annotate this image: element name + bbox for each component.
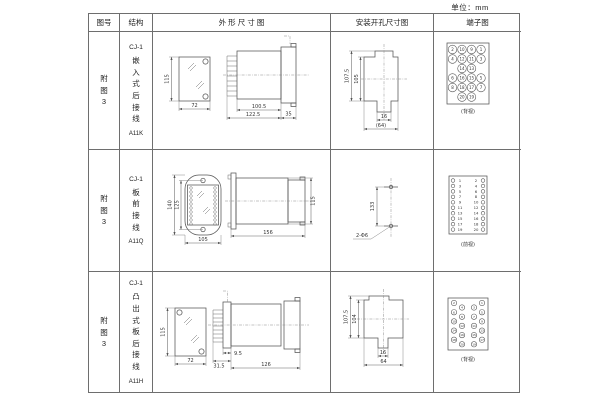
outline-drawing-1: 115 72 100.5 122.5 35 [153,32,330,149]
svg-text:18: 18 [459,85,465,90]
dim-label: 100.5 [252,104,266,110]
dimension-table: 图号 结构 外 形 尺 寸 图 安装开孔尺寸图 端子图 附图3 CJ-1 嵌入式… [88,13,520,393]
svg-text:18: 18 [452,337,456,341]
dim-label: 104 [352,314,358,324]
dim-label: 31.5 [213,363,224,369]
svg-text:4: 4 [461,305,463,309]
terminal-diagram-1: 2109141211314136161558181772019 (背视) [435,32,521,149]
structure-cell-3: CJ-1 凸出式板后接线 A11H [120,272,153,393]
mounting-drawing-2: 133 2-Φ6 [331,150,433,271]
svg-text:9: 9 [481,319,483,323]
svg-text:5: 5 [458,189,461,194]
svg-text:1: 1 [479,47,482,52]
svg-text:9: 9 [458,200,461,205]
structure-cell-1: CJ-1 嵌入式后接线 A11K [120,32,153,150]
svg-text:8: 8 [451,85,454,90]
svg-text:17: 17 [457,221,462,226]
svg-text:9: 9 [470,47,473,52]
outline-drawing-3: 115 72 9.5 31.5 126 [153,273,330,393]
terminal-cell-3: 2610141848121620371115191591317 (背视) [434,272,521,393]
terminal-diagram-3: 2610141848121620371115191591317 (背视) [435,273,521,393]
svg-text:12: 12 [459,56,465,61]
terminal-diagram-2: 1357911131517192468101214161820 (前视) [435,150,521,271]
dim-label: 107.5 [345,69,351,83]
mounting-cell-3: 107.5 104 16 64 [331,272,434,393]
svg-text:15: 15 [472,333,476,337]
dim-label: 35 [285,112,291,118]
terminal-cell-1: 2109141211314136161558181772019 (背视) [434,32,521,150]
svg-text:7: 7 [479,85,482,90]
manual-page: 单位：mm 图号 结构 外 形 尺 寸 图 安装开孔尺寸图 端子图 附图3 CJ… [0,0,600,400]
svg-text:10: 10 [473,200,478,205]
svg-text:1: 1 [458,178,461,183]
svg-text:4: 4 [451,56,454,61]
dim-label: 156 [263,230,273,236]
svg-text:1: 1 [481,301,483,305]
svg-text:16: 16 [460,333,464,337]
svg-text:14: 14 [452,328,456,332]
svg-text:2: 2 [453,301,455,305]
dim-label: 72 [187,358,193,364]
svg-text:6: 6 [453,310,455,314]
svg-text:8: 8 [474,194,477,199]
svg-text:16: 16 [459,75,465,80]
unit-label: 单位：mm [420,2,520,13]
header-structure: 结构 [120,14,153,32]
svg-text:5: 5 [479,75,482,80]
structure-desc-1: 嵌入式后接线 [132,55,140,125]
hole-callout: 2-Φ6 [356,233,368,239]
dim-label: 9.5 [234,351,242,357]
outline-cell-3: 115 72 9.5 31.5 126 [153,272,331,393]
outline-cell-1: 115 72 100.5 122.5 35 [153,32,331,150]
dim-label: 140 [168,200,174,210]
view-label: (前视) [461,241,475,248]
dim-label: 122.5 [246,112,260,118]
svg-text:11: 11 [457,205,462,210]
dim-label: 115 [311,196,317,206]
svg-text:15: 15 [457,216,462,221]
svg-text:10: 10 [459,47,465,52]
svg-text:3: 3 [473,305,475,309]
structure-code-1: A11K [129,131,143,137]
dim-label: 64 [380,359,386,365]
svg-text:11: 11 [472,323,476,327]
svg-text:3: 3 [458,183,461,188]
hatch-mark [188,63,196,71]
outline-drawing-2: 140 125 105 156 115 [153,150,330,271]
svg-text:7: 7 [473,314,475,318]
header-structure-label: 结构 [129,17,144,28]
dim-label: 115 [161,327,167,337]
terminal-pins: 2109141211314136161558181772019 [448,45,485,101]
svg-text:14: 14 [473,211,478,216]
terminal-strip [190,187,193,226]
dim-label: 72 [191,103,197,109]
svg-text:2: 2 [451,47,454,52]
svg-text:4: 4 [474,183,477,188]
hatch-mark [184,317,192,325]
fig-no-cell-3: 附图3 [89,272,120,393]
svg-text:2: 2 [474,178,477,183]
fig-no-cell-1: 附图3 [89,32,120,150]
mounting-drawing-1: 107.5 105 16 (64) [331,32,433,149]
svg-text:7: 7 [458,194,461,199]
svg-text:19: 19 [468,94,474,99]
terminal-strip [214,187,217,226]
hatch-mark [196,81,204,89]
svg-text:17: 17 [480,337,484,341]
structure-cell-2: CJ-1 板前接线 A11Q [120,150,153,272]
svg-text:8: 8 [461,314,463,318]
terminal-pins: 2610141848121620371115191591317 [451,300,484,347]
dim-label: 125 [175,200,181,210]
hatch-mark [203,207,210,214]
dim-label: 115 [165,74,171,84]
dim-label: 105 [354,74,360,84]
model-name-1: CJ-1 [129,44,143,51]
svg-text:13: 13 [457,211,462,216]
svg-text:6: 6 [474,189,477,194]
terminal-cell-2: 1357911131517192468101214161820 (前视) [434,150,521,272]
svg-text:20: 20 [473,227,478,232]
hatch-mark [191,335,199,343]
fig-no-2: 附图3 [100,193,108,228]
model-name-3: CJ-1 [129,280,143,287]
structure-code-3: A11H [129,379,144,385]
view-label: (背视) [461,356,475,363]
svg-text:16: 16 [473,216,478,221]
svg-text:10: 10 [452,319,456,323]
structure-desc-2: 板前接线 [132,187,140,234]
header-fig-no: 图号 [89,14,120,32]
header-outline: 外 形 尺 寸 图 [153,14,331,32]
svg-text:20: 20 [460,342,464,346]
model-name-2: CJ-1 [129,176,143,183]
fig-no-3: 附图3 [100,315,108,350]
dim-label: 16 [381,114,387,120]
dim-label: (64) [376,123,386,129]
header-fig-no-label: 图号 [97,17,112,28]
svg-text:6: 6 [451,75,454,80]
svg-text:15: 15 [468,75,474,80]
terminal-comb [213,310,223,342]
svg-text:3: 3 [479,56,482,61]
mounting-drawing-3: 107.5 104 16 64 [331,273,433,393]
fig-no-cell-2: 附图3 [89,150,120,272]
header-mounting: 安装开孔尺寸图 [331,14,434,32]
header-mounting-label: 安装开孔尺寸图 [356,17,409,28]
terminal-pins: 1357911131517192468101214161820 [451,178,485,232]
dim-label: 126 [261,362,271,368]
svg-text:12: 12 [460,323,464,327]
dim-label: 105 [198,237,208,243]
fig-no-1: 附图3 [100,73,108,108]
svg-text:14: 14 [459,66,465,71]
svg-text:20: 20 [459,94,465,99]
structure-code-2: A11Q [129,239,144,245]
svg-text:13: 13 [480,328,484,332]
svg-text:19: 19 [472,342,476,346]
dim-label: 107.5 [344,309,350,323]
header-outline-label: 外 形 尺 寸 图 [219,17,265,28]
svg-text:13: 13 [468,66,474,71]
outline-cell-2: 140 125 105 156 115 [153,150,331,272]
header-terminal-label: 端子图 [466,17,489,28]
svg-text:12: 12 [473,205,478,210]
view-label: (背视) [461,108,475,115]
structure-desc-3: 凸出式板后接线 [132,291,140,372]
svg-text:19: 19 [457,227,462,232]
header-terminal: 端子图 [434,14,521,32]
svg-text:11: 11 [468,56,474,61]
terminal-comb [227,56,237,96]
dim-label: 133 [370,202,376,212]
svg-text:17: 17 [468,85,474,90]
mounting-cell-1: 107.5 105 16 (64) [331,32,434,150]
hatch-mark [197,191,204,198]
svg-text:18: 18 [473,221,478,226]
mounting-cell-2: 133 2-Φ6 [331,150,434,272]
svg-text:5: 5 [481,310,483,314]
